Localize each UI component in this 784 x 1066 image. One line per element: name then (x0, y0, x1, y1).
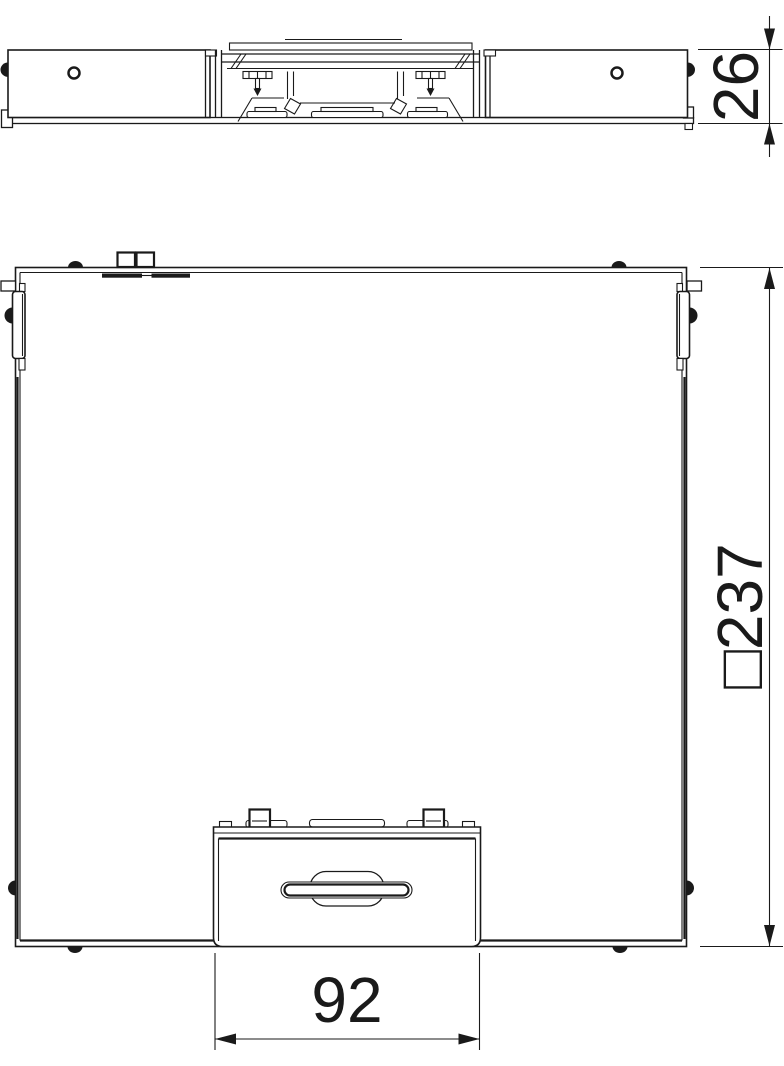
edge-stud-bottom-left (68, 947, 83, 954)
side-lug-right (687, 281, 702, 291)
top-edge-tabs (118, 253, 155, 268)
arrowhead-up-icon (764, 124, 775, 145)
snap-clip-right (416, 72, 445, 97)
lever-left (285, 72, 301, 115)
edge-stud-right-lower (687, 881, 695, 896)
foot-pad-right (408, 108, 448, 118)
edge-stud-top-left (68, 261, 83, 268)
arrowhead-down-icon (764, 29, 775, 50)
latch-right (677, 281, 702, 370)
arrowhead-left-icon (215, 1034, 236, 1045)
dim-label-26: 26 (700, 51, 772, 122)
carrier-tab-right (424, 810, 445, 828)
latch-left (1, 281, 25, 370)
dimension-width-237: □237 (700, 268, 783, 947)
edge-stud-left-upper (5, 308, 13, 324)
tab-square-left (118, 253, 136, 268)
cover-plate-edge (230, 43, 473, 50)
dim-label-237: □237 (704, 543, 776, 688)
carrier-tab-left (250, 810, 271, 828)
foot-pad-left (247, 108, 287, 118)
edge-stud-left (0, 63, 8, 77)
foot-pad-center (312, 108, 384, 118)
dim-label-92: 92 (311, 964, 382, 1036)
side-elevation-view: 26 (0, 16, 782, 157)
edge-stud-bottom-right (613, 947, 628, 954)
technical-drawing-page: 26 (0, 0, 784, 1066)
side-lug-left (1, 281, 16, 291)
dimension-height-26: 26 (698, 16, 783, 157)
plan-view: □237 92 (1, 253, 783, 1051)
floor-box-drawing: 26 (0, 0, 784, 1066)
snap-clip-left (243, 72, 272, 97)
lever-right (391, 72, 407, 115)
arrowhead-right-icon (459, 1034, 480, 1045)
edge-stud-right-upper (690, 308, 698, 324)
edge-stud-top-right (612, 261, 627, 268)
corner-hatch-right (455, 54, 470, 69)
dimension-handle-92: 92 (215, 953, 480, 1050)
arrowhead-up-icon (764, 268, 775, 289)
left-wing (0, 50, 216, 118)
edge-stud-right (688, 63, 695, 77)
handle-slot-inner (285, 885, 409, 896)
corner-hatch-left (231, 54, 246, 69)
arrowhead-down-icon (764, 925, 775, 946)
edge-stud-left-lower (8, 881, 15, 896)
outlet-carrier-box (214, 810, 481, 947)
center-cassette (216, 40, 480, 122)
tab-square-right (137, 253, 155, 268)
right-wing (484, 50, 695, 118)
